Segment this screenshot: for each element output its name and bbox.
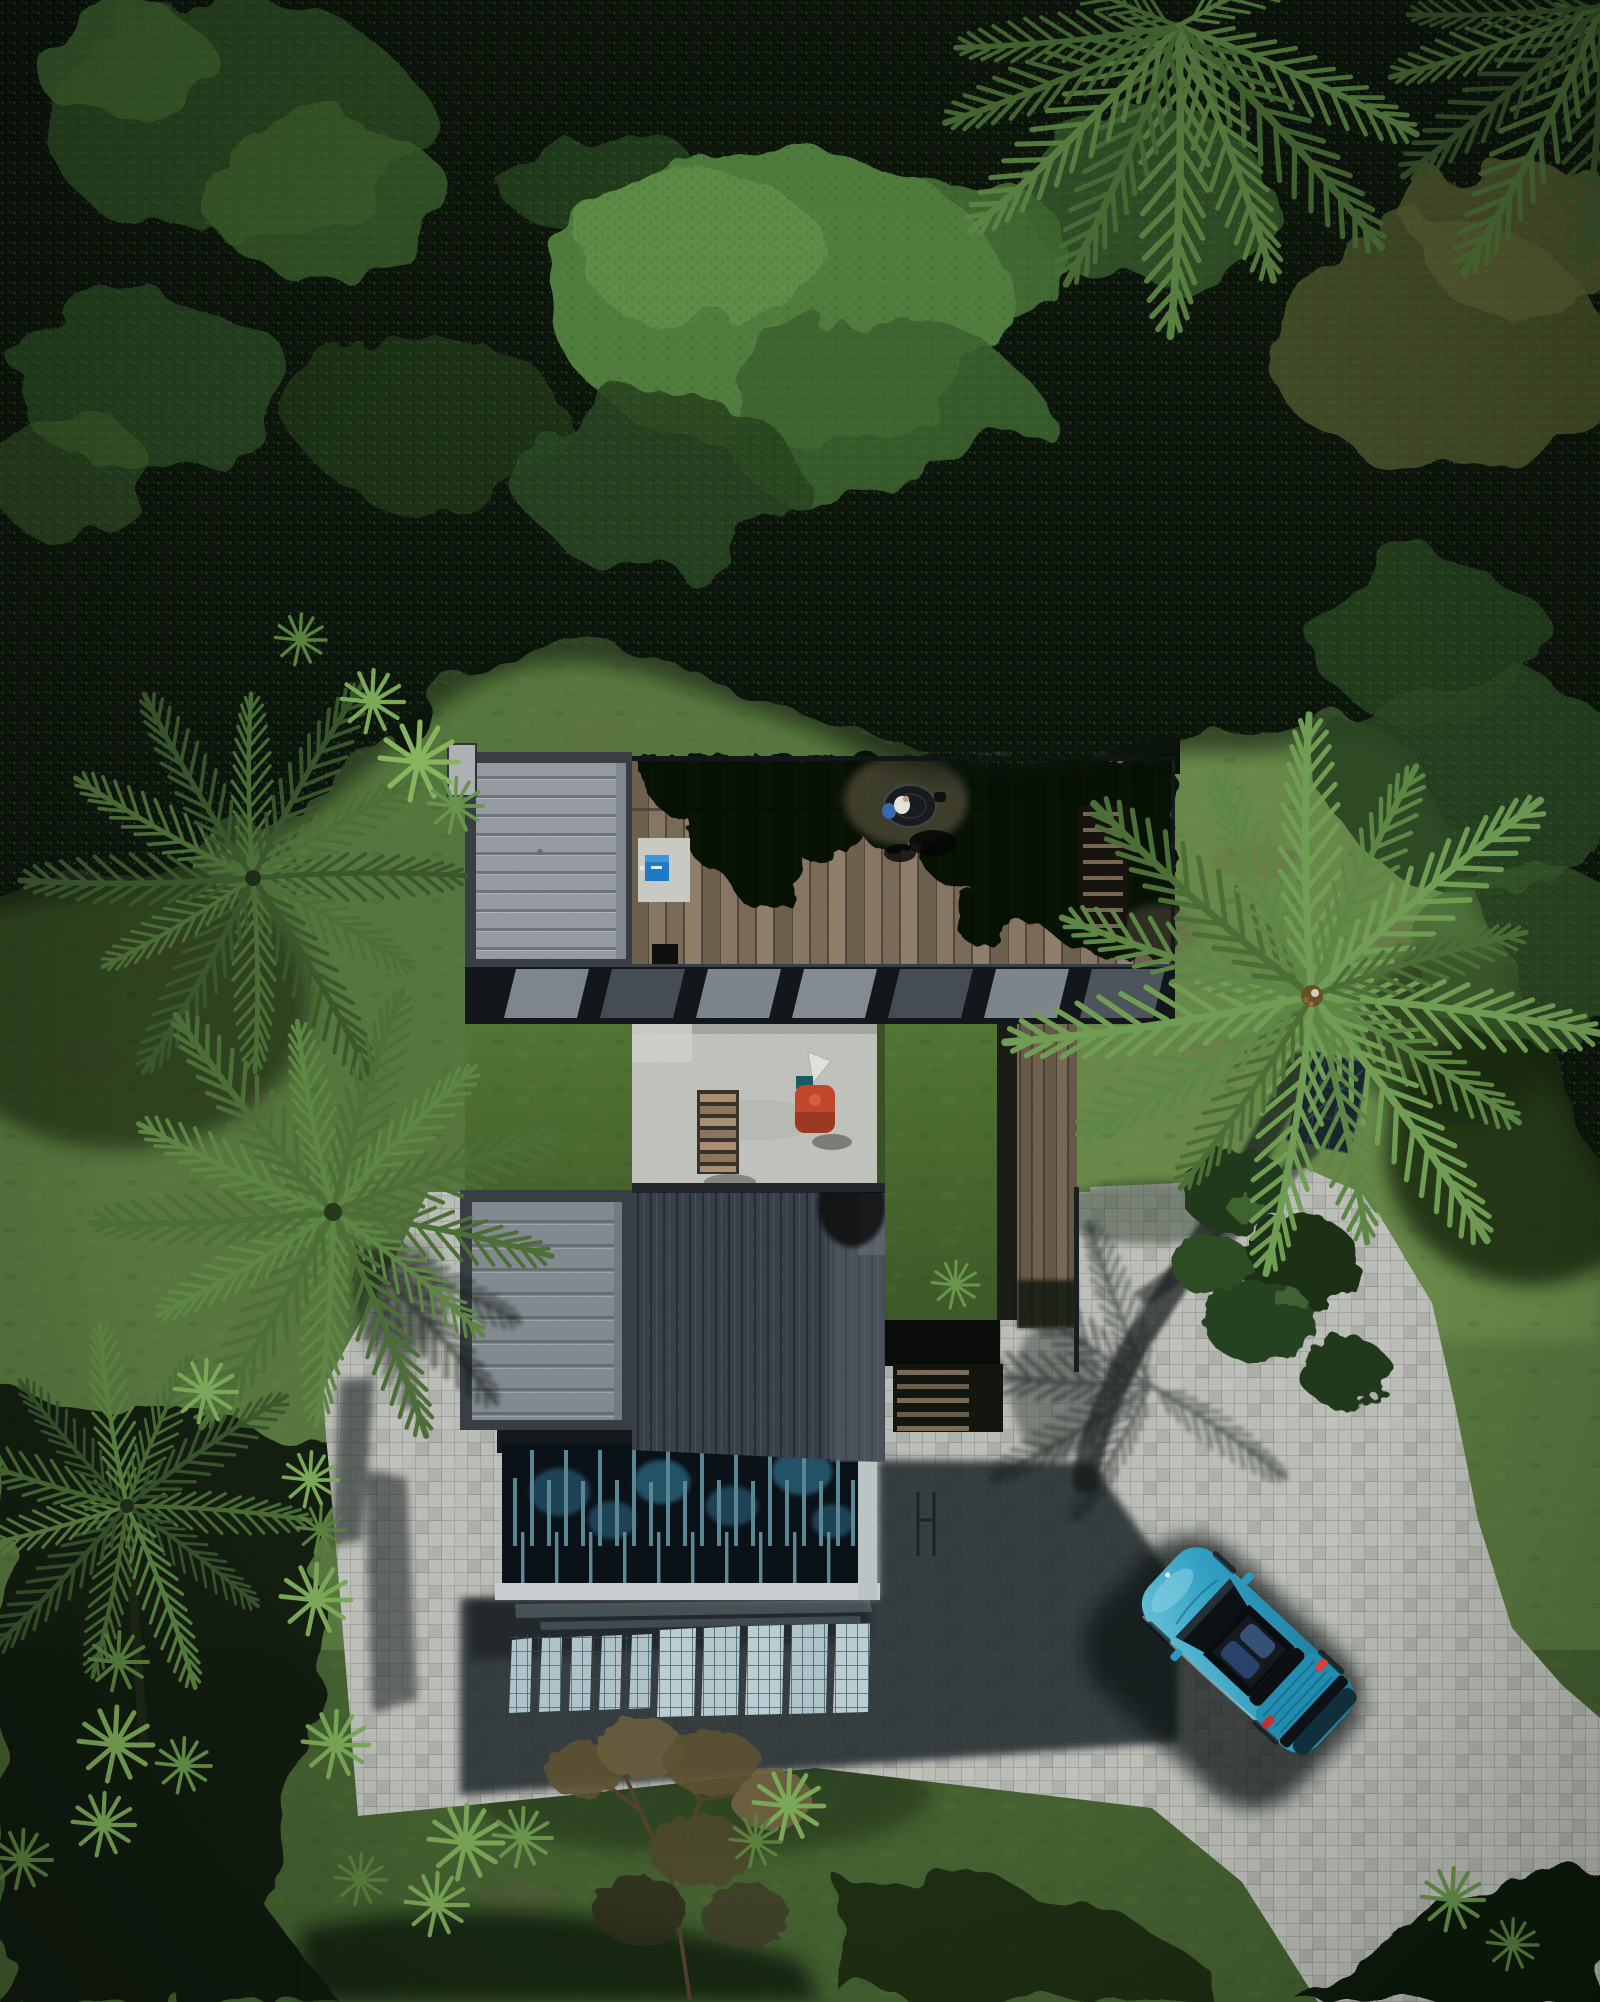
film-grain bbox=[0, 0, 1600, 2002]
aerial-photo: Aerial drone view of a modern jungle vil… bbox=[0, 0, 1600, 2002]
